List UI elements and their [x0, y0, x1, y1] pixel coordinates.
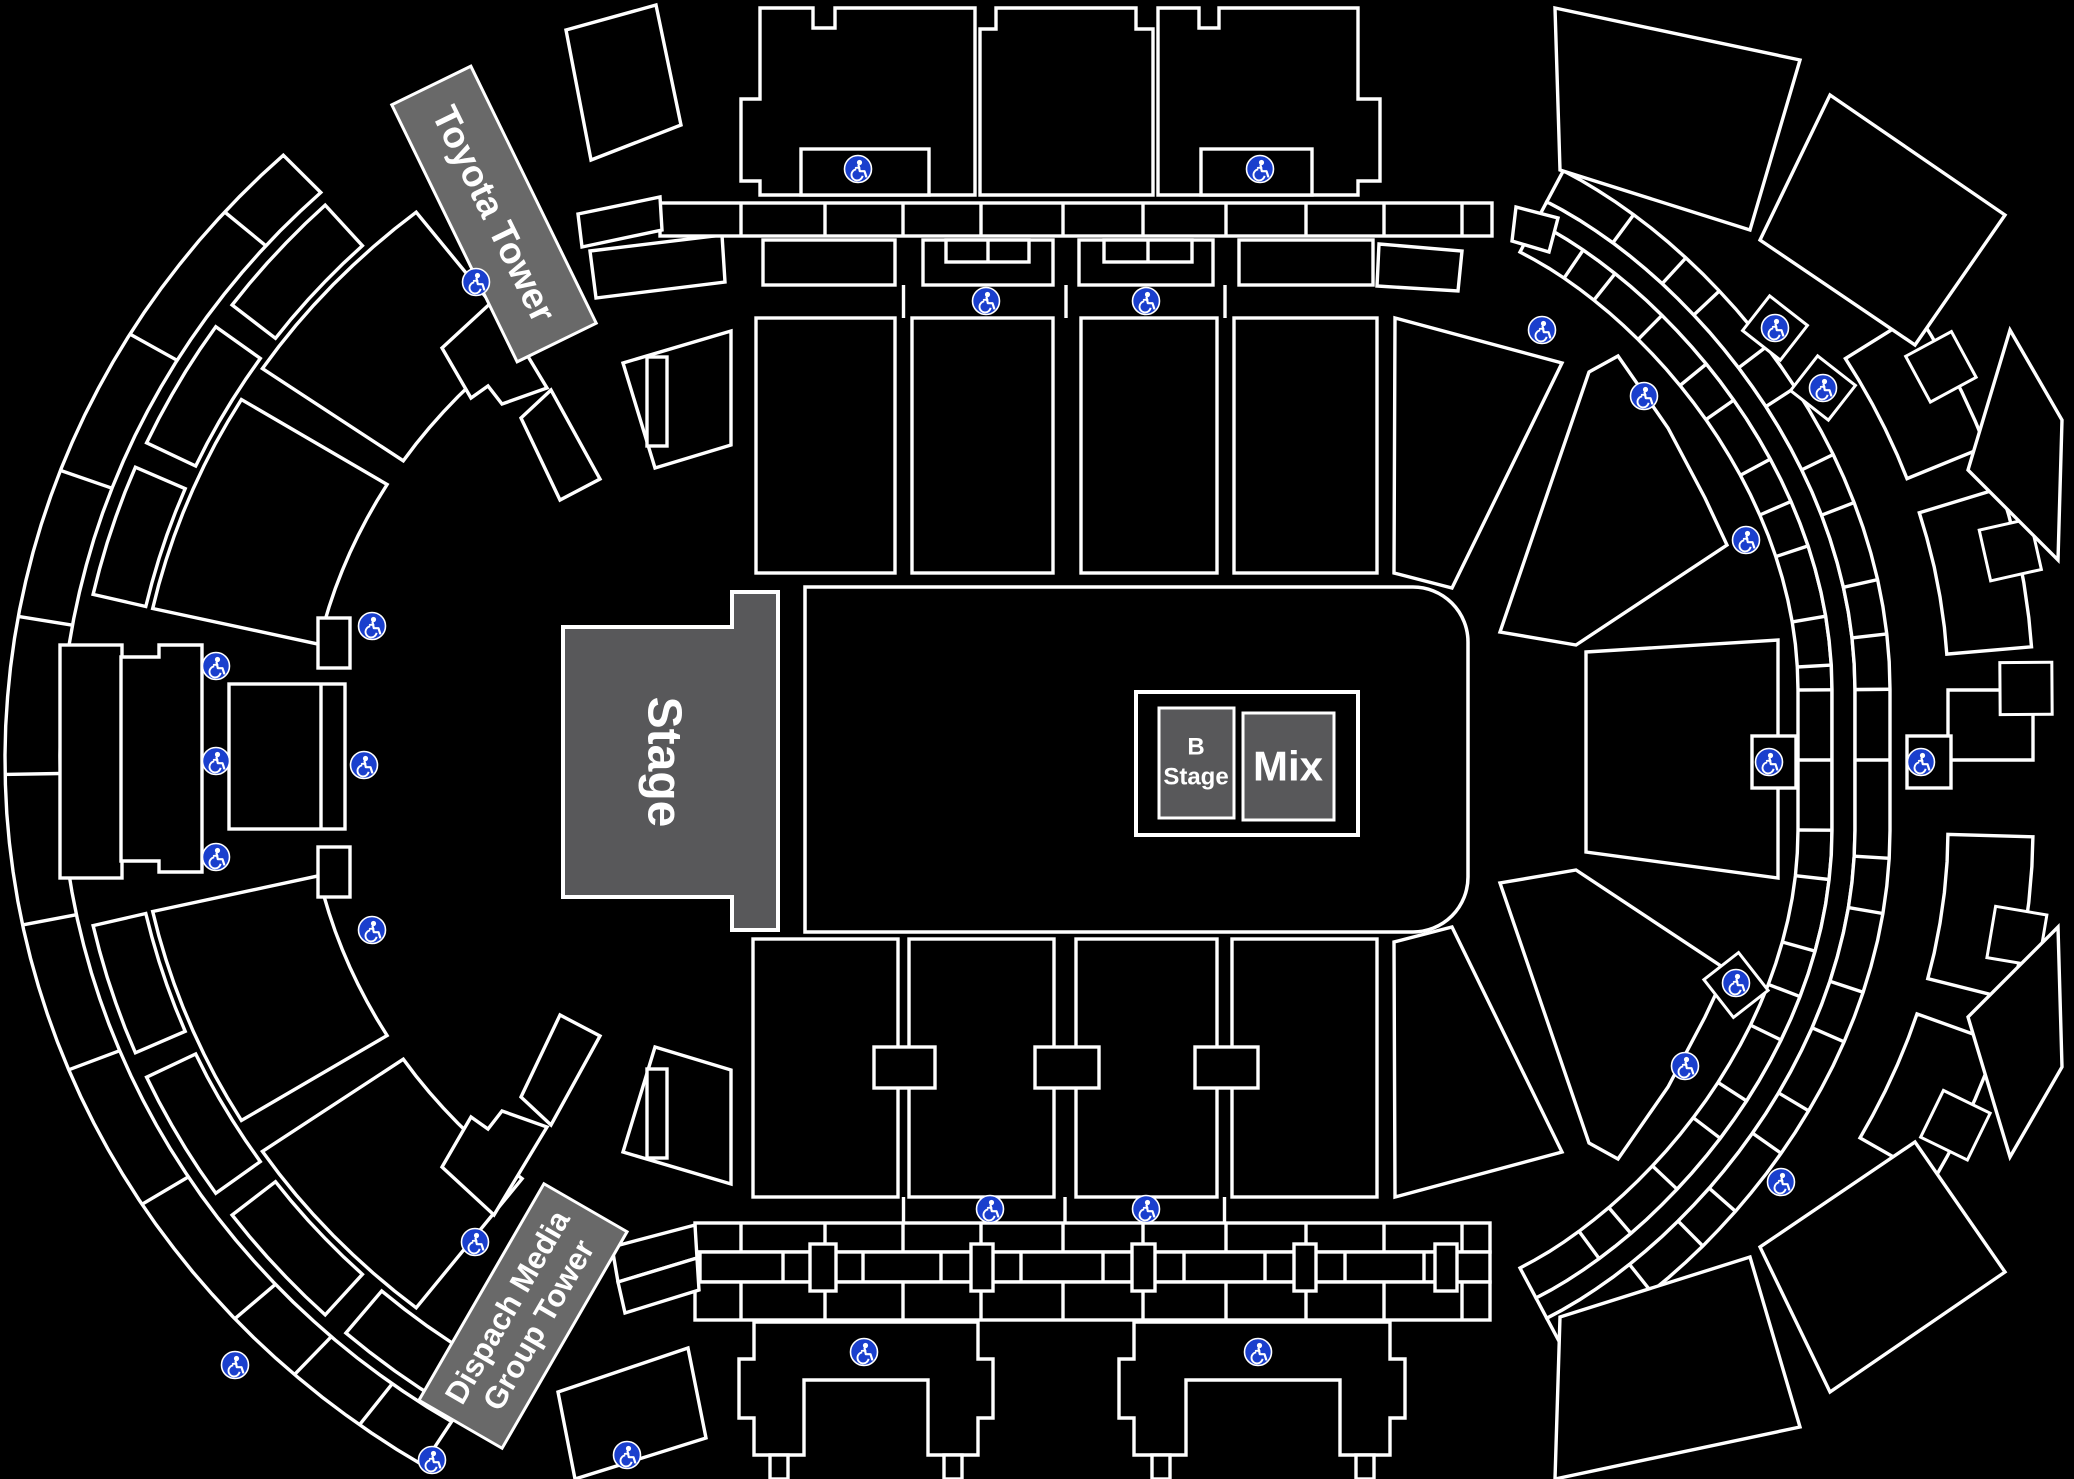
svg-text:B: B	[1187, 734, 1204, 761]
svg-text:Stage: Stage	[638, 697, 691, 828]
svg-text:Mix: Mix	[1253, 743, 1324, 790]
svg-text:Stage: Stage	[1163, 764, 1228, 791]
